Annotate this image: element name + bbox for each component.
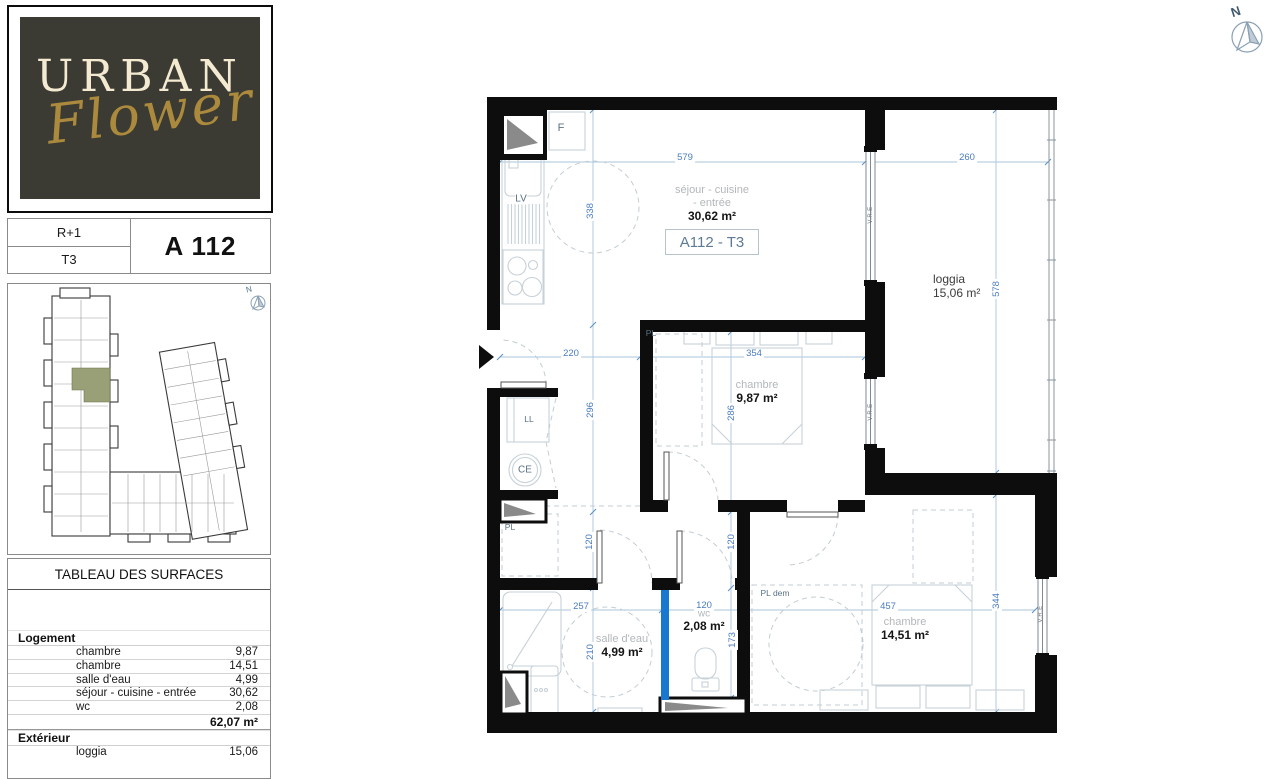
water-heater-label: CE [518,465,532,476]
surface-table-panel: TABLEAU DES SURFACES Logement chambre9,8… [7,558,271,779]
table-row: salle d'eau4,99 [8,674,270,688]
dim-hall-right: 120 [727,532,737,552]
loggia-label: loggia 15,06 m² [933,272,980,300]
wc-area: 2,08 m² [683,619,724,633]
chambre2-label: chambre [884,616,927,628]
table-row: wc2,08 [8,701,270,715]
fridge-label: F [558,122,565,134]
salle-deau-area: 4,99 m² [601,645,642,659]
closet-chambre1-label: PL [646,328,656,338]
dishwasher-label: LV [515,194,527,205]
window-vre-label-3: V.R.E [1038,605,1044,622]
table-row: loggia15,06 [8,746,270,759]
section-logement: Logement [8,630,270,646]
surface-table-title: TABLEAU DES SURFACES [8,559,270,590]
table-row: chambre14,51 [8,660,270,674]
dim-salle-deau-width: 257 [571,602,591,612]
dim-chambre1-height: 286 [727,403,737,423]
dim-entree-height: 296 [586,400,596,420]
dim-loggia-width: 260 [957,153,977,163]
closet-dem-label: PL dem [761,588,790,598]
chambre1-area: 9,87 m² [736,391,777,405]
unit-code-label: A 112 [131,219,270,273]
section-exterieur: Extérieur [8,730,270,746]
dim-wc-height: 173 [728,630,738,650]
closet-hall-label: PL [505,522,515,532]
sejour-label-line1: séjour - cuisine [675,184,749,196]
dim-chambre1-width: 354 [744,349,764,359]
dim-sejour-height: 338 [586,201,596,221]
window-vre-label-2: V.R.E [868,403,874,420]
table-row: séjour - cuisine - entrée30,62 [8,687,270,701]
salle-deau-label: salle d'eau [596,633,648,645]
dim-sejour-width: 579 [675,153,695,163]
unit-tag-box: A112 - T3 [665,229,759,255]
dim-wc-width: 120 [694,601,714,611]
dim-chambre2-height: 344 [992,591,1002,611]
sejour-area: 30,62 m² [688,209,736,223]
brand-logo-panel: URBAN Flower [7,5,273,213]
chambre1-label: chambre [736,379,779,391]
logement-total: 62,07 m² [8,715,270,730]
dim-loggia-height: 578 [992,279,1002,299]
chambre2-area: 14,51 m² [881,628,929,642]
dim-entree-width: 220 [561,349,581,359]
window-vre-label-1: V.R.E [868,206,874,223]
washing-machine-label: LL [524,414,533,424]
site-plan-panel: N [7,283,271,555]
sejour-label-line2: - entrée [693,197,731,209]
dim-chambre2-width: 457 [878,602,898,612]
dim-salle-deau-height: 210 [586,642,596,662]
dim-hall-left: 120 [585,532,595,552]
unit-floor-label: R+1 [8,219,130,247]
compass-north-label: N [1229,3,1243,20]
unit-type-label: T3 [8,247,130,274]
unit-info-card: R+1 T3 A 112 [7,218,271,274]
brand-logo: URBAN Flower [20,17,260,199]
site-compass-icon [251,296,265,310]
site-plan-drawing [8,284,268,552]
table-row: chambre9,87 [8,646,270,660]
